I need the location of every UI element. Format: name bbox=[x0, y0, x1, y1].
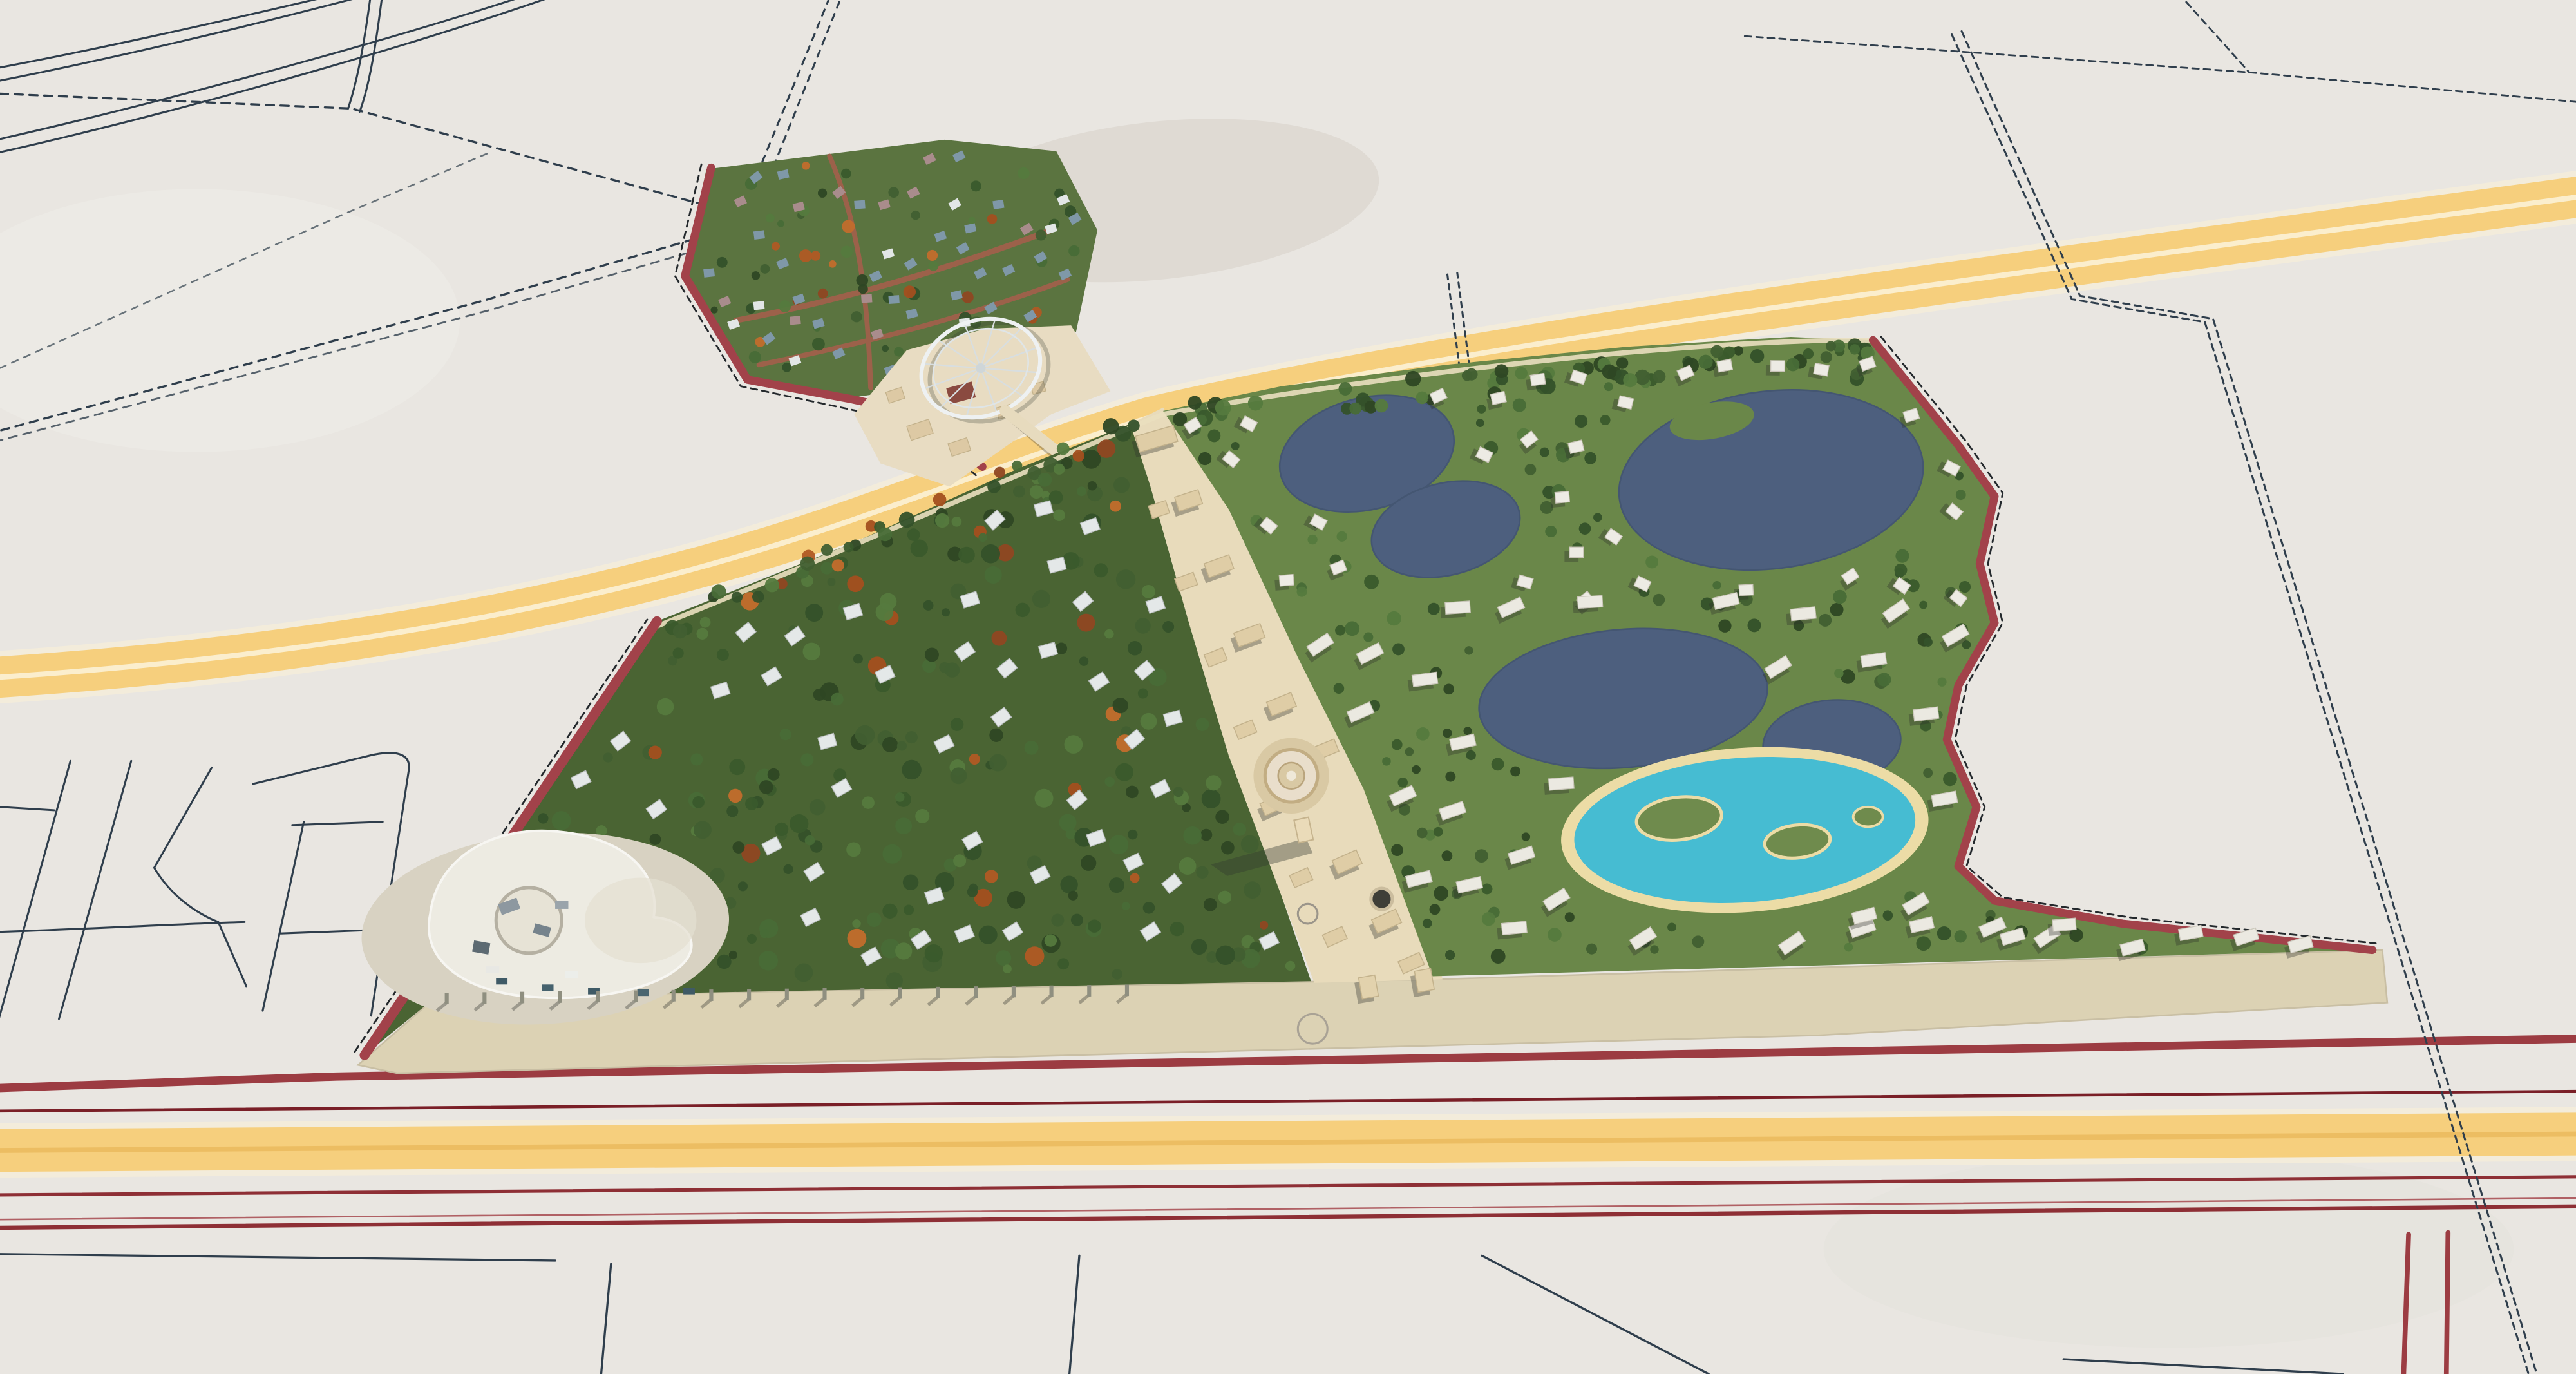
tree bbox=[1877, 673, 1891, 686]
tree bbox=[1215, 400, 1231, 416]
tree bbox=[1392, 739, 1403, 750]
tree bbox=[1216, 946, 1235, 965]
tree bbox=[795, 964, 813, 982]
tree bbox=[1819, 614, 1832, 627]
tree bbox=[1032, 590, 1050, 608]
tree bbox=[1285, 961, 1295, 971]
masterplan-scene bbox=[0, 0, 2576, 1374]
tree bbox=[1650, 945, 1658, 953]
tree bbox=[1844, 943, 1853, 952]
tree bbox=[1183, 826, 1202, 845]
tree bbox=[899, 512, 915, 528]
tree bbox=[813, 689, 826, 701]
autumn-tree bbox=[927, 250, 938, 261]
tree bbox=[905, 731, 918, 743]
tree bbox=[1491, 949, 1506, 964]
tree bbox=[650, 834, 661, 845]
tree bbox=[987, 480, 1001, 493]
tree bbox=[945, 662, 960, 677]
autumn-tree bbox=[987, 214, 998, 224]
tree bbox=[1593, 513, 1602, 522]
east-apartment-slab bbox=[1577, 595, 1602, 608]
tree bbox=[712, 584, 726, 599]
tree bbox=[768, 768, 780, 781]
tree bbox=[1653, 594, 1665, 606]
tree bbox=[895, 817, 912, 834]
tree bbox=[1416, 727, 1430, 741]
tree bbox=[1623, 373, 1637, 387]
tree bbox=[895, 792, 905, 802]
tree bbox=[882, 844, 902, 864]
tree bbox=[1188, 396, 1202, 410]
wall-post bbox=[709, 989, 713, 1001]
tree bbox=[1109, 835, 1128, 854]
autumn-tree bbox=[961, 291, 973, 303]
tree bbox=[886, 972, 903, 989]
tree bbox=[1604, 382, 1613, 391]
wall-post bbox=[1012, 986, 1016, 997]
tree bbox=[1667, 923, 1676, 932]
east-apartment-slab bbox=[1913, 707, 1939, 721]
parked-vehicle bbox=[638, 989, 649, 996]
nw-parcel-house bbox=[854, 200, 865, 209]
tree bbox=[1206, 775, 1221, 790]
tree bbox=[777, 220, 784, 227]
tree bbox=[818, 189, 827, 198]
tree bbox=[1923, 768, 1933, 778]
tree bbox=[1937, 678, 1946, 687]
tree bbox=[1307, 535, 1317, 544]
tree bbox=[732, 591, 743, 602]
tree bbox=[1465, 368, 1477, 381]
tree bbox=[1012, 461, 1022, 471]
tree bbox=[1191, 939, 1207, 955]
tree bbox=[1196, 866, 1208, 879]
nw-parcel-house bbox=[992, 200, 1004, 209]
autumn-tree bbox=[994, 467, 1005, 478]
tree bbox=[1349, 403, 1361, 415]
tree bbox=[1025, 741, 1039, 755]
tree bbox=[1616, 357, 1628, 368]
tree bbox=[732, 841, 744, 854]
tree bbox=[978, 533, 987, 542]
tree bbox=[1082, 450, 1101, 469]
tree bbox=[911, 540, 928, 557]
tree bbox=[888, 187, 899, 198]
tree bbox=[1417, 828, 1428, 839]
tree bbox=[1423, 919, 1432, 928]
tree bbox=[1053, 510, 1065, 521]
tree bbox=[911, 211, 920, 220]
tree bbox=[1826, 341, 1836, 351]
tree bbox=[1018, 167, 1029, 179]
tree bbox=[1007, 891, 1025, 909]
south-red-branch-2 bbox=[2447, 1233, 2448, 1374]
tree bbox=[1141, 713, 1157, 730]
tree bbox=[1077, 486, 1086, 496]
tree bbox=[902, 760, 921, 779]
tree bbox=[673, 624, 687, 638]
tree bbox=[867, 912, 882, 927]
tree bbox=[1094, 563, 1108, 577]
tree bbox=[1207, 430, 1220, 443]
wall-post bbox=[558, 991, 562, 1003]
tree bbox=[1060, 876, 1077, 893]
tree bbox=[951, 767, 967, 784]
tree bbox=[717, 649, 729, 661]
tree bbox=[692, 796, 705, 808]
tree bbox=[1218, 891, 1231, 904]
tree bbox=[765, 578, 779, 592]
wall-post bbox=[1125, 984, 1129, 996]
tree bbox=[800, 557, 815, 571]
tree bbox=[1464, 646, 1473, 654]
tree bbox=[904, 904, 914, 915]
tree bbox=[1128, 419, 1140, 432]
tree bbox=[935, 513, 949, 528]
autumn-tree bbox=[969, 754, 980, 765]
tree bbox=[552, 811, 571, 830]
nw-parcel-house bbox=[861, 294, 872, 303]
autumn-tree bbox=[933, 493, 947, 506]
tree bbox=[1443, 729, 1452, 738]
gate-tower-block bbox=[1414, 968, 1434, 992]
tree bbox=[1162, 621, 1174, 633]
tree bbox=[1297, 587, 1307, 597]
tree bbox=[1334, 683, 1345, 694]
tree bbox=[1850, 344, 1860, 354]
tree bbox=[779, 300, 791, 312]
tree bbox=[1430, 904, 1441, 915]
tree bbox=[878, 528, 893, 542]
promenade-row-slab bbox=[2052, 918, 2076, 931]
tree bbox=[1956, 490, 1966, 500]
tree bbox=[856, 274, 868, 287]
tree bbox=[1579, 522, 1591, 535]
tree bbox=[1747, 618, 1761, 632]
tree bbox=[844, 542, 854, 552]
wall-post bbox=[520, 992, 524, 1004]
tree bbox=[1710, 345, 1723, 358]
tree bbox=[1071, 914, 1083, 926]
wall-post bbox=[747, 989, 751, 1000]
tree bbox=[1955, 930, 1967, 942]
tree bbox=[840, 246, 853, 258]
tree bbox=[1548, 928, 1562, 942]
tree bbox=[760, 264, 770, 274]
tree bbox=[1387, 611, 1401, 625]
tree bbox=[855, 725, 875, 745]
tree bbox=[981, 544, 1000, 564]
tree bbox=[1482, 912, 1495, 926]
parked-vehicle bbox=[496, 978, 507, 984]
tree bbox=[1416, 392, 1428, 405]
east-cottage bbox=[1771, 361, 1785, 372]
east-apartment-slab bbox=[1790, 607, 1816, 621]
tree bbox=[1364, 575, 1379, 589]
tree bbox=[953, 854, 966, 867]
tree bbox=[1750, 349, 1765, 363]
tree bbox=[1054, 464, 1065, 475]
tree bbox=[782, 363, 791, 372]
tree bbox=[923, 600, 933, 611]
tree bbox=[1515, 367, 1528, 379]
tree bbox=[1065, 735, 1083, 754]
tree bbox=[1113, 698, 1128, 713]
tree bbox=[760, 929, 770, 939]
east-apartment-slab bbox=[1445, 601, 1470, 614]
tree bbox=[717, 257, 728, 268]
tree bbox=[805, 835, 815, 846]
tree bbox=[1492, 758, 1504, 770]
tree bbox=[841, 169, 851, 178]
masterplan-render-viewport bbox=[0, 0, 2576, 1374]
tree bbox=[1428, 603, 1440, 615]
wall-post bbox=[634, 991, 638, 1002]
tree bbox=[952, 517, 962, 527]
tree bbox=[749, 351, 761, 363]
wall-post bbox=[822, 988, 826, 1000]
tree bbox=[951, 718, 963, 730]
tree bbox=[1600, 415, 1611, 425]
tree bbox=[1013, 486, 1025, 498]
tree bbox=[831, 693, 844, 706]
east-cottage bbox=[1739, 584, 1753, 596]
playground-structure bbox=[555, 901, 568, 909]
tree bbox=[1476, 419, 1484, 427]
tree bbox=[726, 805, 738, 817]
tree bbox=[979, 926, 998, 944]
tree bbox=[1645, 556, 1658, 569]
east-apartment-slab bbox=[1501, 921, 1527, 935]
east-cottage bbox=[1814, 363, 1829, 376]
tree bbox=[1463, 727, 1472, 735]
autumn-tree bbox=[818, 289, 828, 299]
wall-post bbox=[1087, 985, 1091, 997]
nw-parcel-house bbox=[703, 268, 715, 277]
autumn-tree bbox=[1130, 873, 1140, 883]
gate-tower-block bbox=[1359, 975, 1379, 999]
tree bbox=[1698, 355, 1712, 369]
tree bbox=[1634, 370, 1650, 385]
nw-parcel-house bbox=[790, 316, 801, 325]
wall-post bbox=[936, 987, 940, 998]
autumn-tree bbox=[1260, 921, 1268, 929]
tree bbox=[971, 180, 981, 191]
parked-vehicle bbox=[683, 988, 695, 994]
tree bbox=[1335, 625, 1345, 636]
tree bbox=[925, 944, 943, 962]
tree bbox=[1200, 829, 1213, 841]
wall-post bbox=[974, 986, 978, 998]
tree bbox=[925, 647, 939, 662]
tree bbox=[1712, 581, 1721, 589]
tree bbox=[1718, 620, 1731, 633]
tree bbox=[810, 799, 826, 816]
east-cottage bbox=[1279, 575, 1294, 586]
tree bbox=[1565, 912, 1575, 922]
east-cottage bbox=[1530, 373, 1546, 385]
tree bbox=[1653, 370, 1666, 383]
tree bbox=[989, 754, 1007, 772]
tree bbox=[820, 562, 833, 575]
tree bbox=[803, 643, 821, 661]
autumn-tree bbox=[848, 929, 867, 948]
tree bbox=[1477, 405, 1486, 414]
tree bbox=[894, 347, 904, 357]
tree bbox=[1803, 348, 1814, 359]
autumn-tree bbox=[772, 242, 780, 251]
tree bbox=[1112, 969, 1122, 979]
tree bbox=[1215, 810, 1229, 824]
tree bbox=[1035, 789, 1054, 808]
tree bbox=[805, 604, 823, 622]
tree bbox=[1103, 418, 1119, 434]
tree bbox=[1575, 415, 1587, 428]
autumn-tree bbox=[847, 575, 864, 592]
tree bbox=[1088, 481, 1097, 490]
tree bbox=[1883, 910, 1893, 921]
tree bbox=[657, 698, 674, 715]
tree bbox=[1104, 629, 1114, 639]
tree bbox=[1443, 683, 1454, 694]
tree bbox=[1405, 747, 1414, 756]
tree bbox=[1786, 358, 1800, 372]
tree bbox=[882, 904, 897, 919]
tree bbox=[1391, 844, 1403, 856]
tree bbox=[1830, 603, 1844, 616]
wall-post bbox=[860, 988, 864, 999]
tree bbox=[1079, 656, 1089, 666]
autumn-tree bbox=[1097, 439, 1116, 458]
tree bbox=[1059, 814, 1077, 832]
tree bbox=[1231, 442, 1240, 450]
tree bbox=[1442, 850, 1453, 861]
tree bbox=[1049, 490, 1063, 504]
tree bbox=[1170, 922, 1184, 936]
tree bbox=[985, 566, 1002, 584]
autumn-tree bbox=[1073, 450, 1084, 461]
tree bbox=[882, 345, 889, 352]
nw-parcel-house bbox=[753, 230, 765, 240]
parked-vehicle bbox=[565, 971, 578, 978]
wall-post bbox=[445, 993, 449, 1004]
tree bbox=[538, 813, 548, 823]
tree bbox=[958, 547, 975, 564]
tree bbox=[673, 647, 684, 658]
tree bbox=[775, 823, 788, 836]
tree bbox=[1045, 934, 1057, 946]
tree bbox=[1834, 669, 1844, 678]
tree bbox=[1143, 902, 1155, 914]
autumn-tree bbox=[1110, 501, 1121, 512]
tree bbox=[1397, 778, 1408, 788]
east-cottage bbox=[1569, 547, 1584, 558]
tree bbox=[729, 759, 745, 775]
tree bbox=[1135, 618, 1151, 633]
tree bbox=[1375, 399, 1388, 412]
autumn-tree bbox=[991, 631, 1007, 646]
tree bbox=[694, 821, 712, 839]
tree bbox=[1412, 765, 1420, 774]
tree bbox=[1057, 958, 1069, 969]
tree bbox=[1895, 564, 1908, 577]
tree bbox=[1142, 585, 1155, 598]
tree bbox=[1540, 448, 1549, 457]
tree bbox=[747, 934, 757, 944]
tree bbox=[1434, 827, 1443, 837]
tree bbox=[1138, 689, 1148, 699]
central-plaza-core bbox=[1286, 771, 1296, 781]
autumn-tree bbox=[802, 162, 810, 170]
tree bbox=[1233, 823, 1247, 836]
tree bbox=[1445, 950, 1455, 960]
tree bbox=[821, 544, 833, 556]
tree bbox=[1943, 772, 1957, 787]
tree bbox=[1244, 881, 1261, 899]
tree bbox=[1895, 549, 1909, 563]
tree bbox=[968, 217, 975, 224]
tree bbox=[1916, 936, 1931, 951]
wall-post bbox=[898, 988, 902, 999]
wall-post bbox=[785, 989, 789, 1000]
tree bbox=[853, 654, 863, 663]
tree bbox=[1202, 789, 1221, 808]
autumn-tree bbox=[985, 870, 998, 883]
parked-vehicle bbox=[486, 966, 499, 973]
tree bbox=[1128, 641, 1142, 655]
tree bbox=[1221, 841, 1235, 855]
tree bbox=[729, 951, 737, 959]
tree bbox=[1510, 767, 1520, 777]
tree bbox=[862, 796, 875, 809]
tree bbox=[800, 753, 813, 766]
tree bbox=[882, 737, 898, 752]
nw-parcel-house bbox=[888, 295, 899, 304]
tree bbox=[1030, 485, 1043, 499]
tree bbox=[1248, 396, 1263, 410]
gate-dome bbox=[1371, 888, 1392, 910]
tree bbox=[790, 814, 808, 833]
tree bbox=[780, 729, 791, 740]
tree bbox=[1179, 857, 1196, 875]
autumn-tree bbox=[904, 285, 916, 298]
tree bbox=[880, 593, 896, 610]
tree bbox=[1734, 346, 1743, 356]
wall-post bbox=[596, 991, 600, 1002]
autumn-tree bbox=[728, 789, 742, 803]
tree bbox=[711, 307, 718, 314]
tree bbox=[1038, 473, 1052, 487]
tree bbox=[1128, 830, 1138, 840]
tree bbox=[766, 214, 775, 223]
autumn-tree bbox=[832, 559, 844, 571]
tree bbox=[1113, 477, 1130, 493]
tree bbox=[903, 875, 919, 891]
tree bbox=[1051, 914, 1064, 927]
tree bbox=[603, 752, 613, 762]
tree bbox=[1115, 763, 1133, 781]
autumn-tree bbox=[829, 260, 837, 268]
autumn-tree bbox=[1025, 946, 1045, 966]
tree bbox=[942, 608, 950, 616]
tree bbox=[1382, 757, 1391, 766]
east-cottage bbox=[1717, 359, 1732, 372]
tree bbox=[783, 864, 793, 874]
tree bbox=[1345, 621, 1359, 636]
tree bbox=[828, 578, 836, 586]
tree bbox=[846, 843, 861, 857]
